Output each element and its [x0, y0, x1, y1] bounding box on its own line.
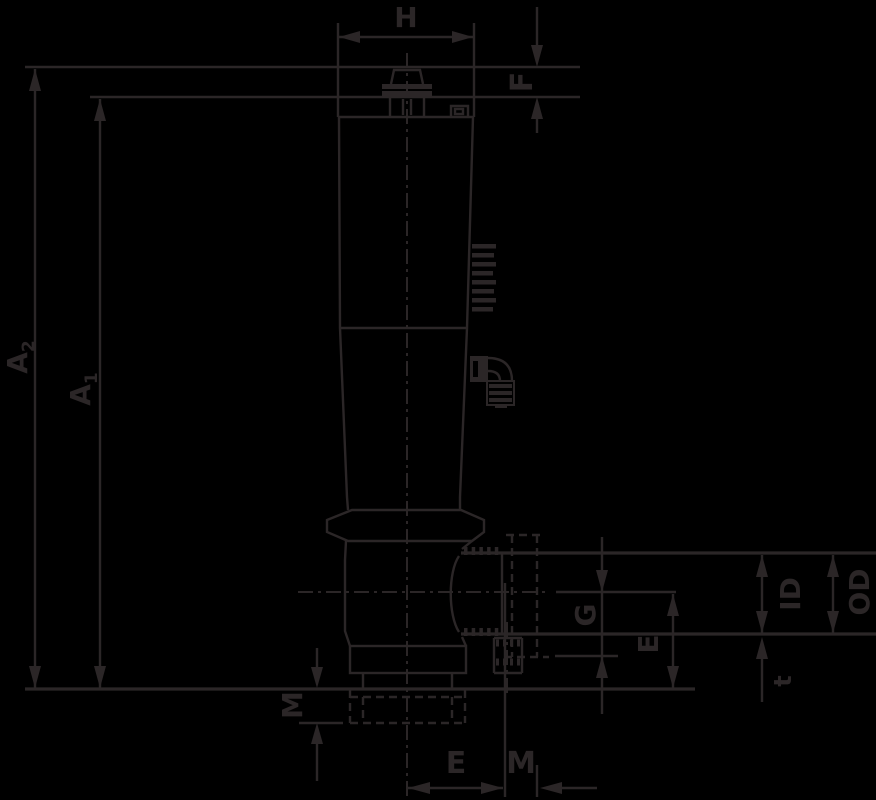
- arrowhead-up: [756, 637, 768, 659]
- dim-a1: A1: [64, 99, 106, 688]
- lower-body-left: [345, 541, 350, 646]
- centerlines: [298, 53, 546, 797]
- elbow-flange: [470, 356, 488, 382]
- dim-label-f: F: [505, 72, 540, 93]
- body-left-edge: [339, 117, 348, 510]
- dimension-drawing: H F A2 A1 M G E: [0, 0, 876, 800]
- arrowhead-up: [667, 594, 679, 616]
- dim-label-a2: A2: [1, 340, 39, 374]
- dim-label-m-bottom: M: [506, 746, 536, 781]
- arrowhead-down: [756, 611, 768, 633]
- knob-nut-bar: [382, 91, 432, 96]
- dim-a2: A2: [1, 69, 41, 688]
- dim-m-left: M: [276, 648, 323, 781]
- dim-label-e-bottom: E: [446, 746, 467, 781]
- valve-body: [327, 23, 522, 689]
- arrowhead-up: [827, 555, 839, 577]
- arrowhead-left: [339, 31, 360, 43]
- collar: [327, 510, 484, 541]
- elbow-fitting: [470, 356, 514, 408]
- dim-e-bottom: E: [408, 746, 503, 794]
- dim-m-bottom: M: [506, 746, 597, 794]
- dim-label-e-right: E: [632, 634, 665, 653]
- arrowhead-right: [481, 782, 503, 794]
- arrowhead-left: [540, 782, 562, 794]
- arrowhead-right: [452, 31, 473, 43]
- dim-label-h: H: [394, 1, 417, 34]
- dim-f: F: [505, 7, 543, 133]
- dim-od: OD: [827, 555, 876, 633]
- dim-e-right: E: [632, 594, 679, 688]
- vent-tab-inner: [455, 109, 463, 114]
- elbow-cup-ring: [489, 391, 512, 395]
- elbow-inner-arc: [488, 371, 500, 381]
- knob-nut-bar: [382, 84, 432, 89]
- dim-label-a1: A1: [64, 372, 102, 406]
- extension-lines: [25, 67, 876, 797]
- dim-label-m-left: M: [276, 691, 309, 719]
- dim-id: ID: [756, 555, 807, 633]
- dim-t: t: [756, 637, 797, 702]
- elbow-cup-ring: [489, 384, 512, 388]
- dim-label-od: OD: [843, 568, 876, 615]
- arrowhead-up: [94, 99, 106, 121]
- port-inner-curve: [451, 556, 459, 632]
- arrowhead-up: [531, 97, 543, 119]
- arrowhead-up: [311, 723, 323, 744]
- arrowhead-left: [408, 782, 430, 794]
- elbow-flange-slot: [473, 361, 478, 377]
- dim-h: H: [339, 1, 473, 43]
- elbow-cup-tip: [495, 405, 507, 408]
- arrowhead-down: [311, 667, 323, 688]
- elbow-cup-ring: [489, 398, 512, 402]
- arrowhead-down: [531, 45, 543, 67]
- arrowhead-up: [756, 555, 768, 577]
- arrowhead-down: [29, 666, 41, 688]
- dim-label-id: ID: [774, 577, 807, 611]
- body-right-edge: [460, 117, 473, 510]
- arrowhead-down: [596, 570, 608, 592]
- arrowhead-down: [667, 666, 679, 688]
- embossed-marking: [472, 244, 496, 312]
- vent-tab: [451, 106, 468, 117]
- lower-body-right-lower: [462, 637, 466, 646]
- arrowhead-up: [29, 69, 41, 91]
- arrowhead-down: [94, 666, 106, 688]
- dim-label-t: t: [769, 675, 797, 686]
- hidden-lines: [350, 535, 549, 723]
- dim-label-g: G: [569, 604, 602, 627]
- arrowhead-down: [827, 611, 839, 633]
- arrowhead-up: [596, 656, 608, 678]
